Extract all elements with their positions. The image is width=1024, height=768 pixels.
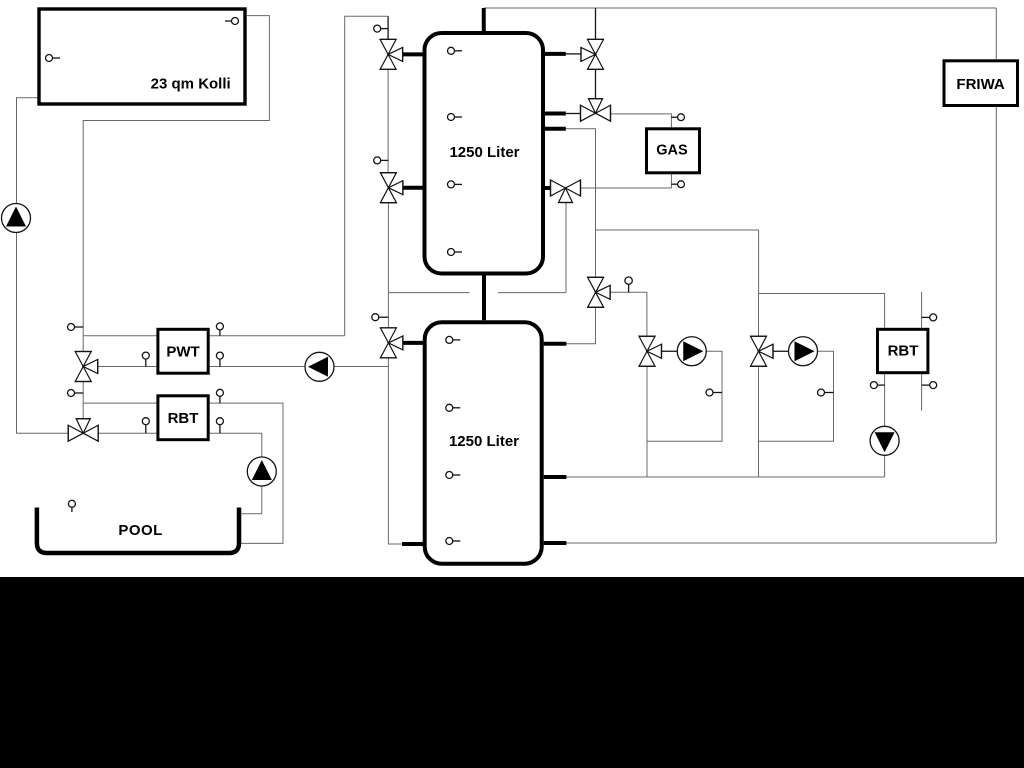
svg-text:1250 Liter: 1250 Liter (449, 144, 519, 161)
svg-text:PWT: PWT (166, 344, 199, 361)
svg-text:GAS: GAS (656, 143, 688, 159)
svg-text:RBT: RBT (168, 410, 199, 427)
svg-text:RBT: RBT (888, 343, 919, 360)
svg-text:FRIWA: FRIWA (956, 76, 1004, 93)
svg-text:1250 Liter: 1250 Liter (449, 433, 519, 450)
svg-text:23 qm Kolli: 23 qm Kolli (151, 75, 231, 92)
svg-text:POOL: POOL (118, 522, 163, 539)
